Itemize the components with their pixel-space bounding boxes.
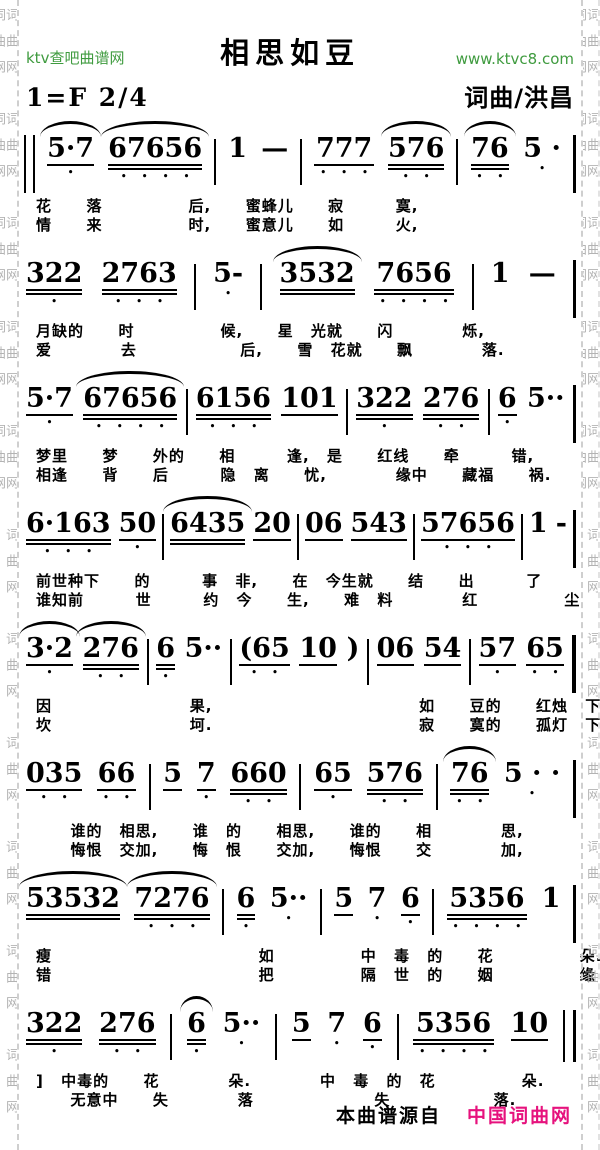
note-group: 6• bbox=[235, 885, 258, 931]
note-group: 7• bbox=[195, 760, 218, 802]
note-digits: 6 bbox=[401, 885, 420, 912]
octave-dots: • bbox=[233, 1040, 251, 1048]
octave-dots: • • • • bbox=[90, 423, 170, 431]
note-digits: 5·· bbox=[527, 385, 565, 412]
beam-line bbox=[26, 914, 120, 916]
note-group: 57656• • • bbox=[419, 510, 517, 552]
note-digits: 10 bbox=[299, 635, 337, 662]
octave-dots: • bbox=[219, 290, 237, 298]
note-group: 5 ·• bbox=[521, 135, 563, 173]
beam-line bbox=[239, 664, 289, 666]
music-system: 322•276• •6•5··•57•6•5356• • • •10] 中毒的 … bbox=[24, 994, 576, 1110]
note-digits: 5- bbox=[213, 260, 243, 287]
beam-line bbox=[108, 164, 202, 166]
note-group: 10 bbox=[509, 1010, 551, 1041]
lyric-line: 悔恨 交加, 悔 恨 交加, 悔恨 交 加, bbox=[24, 841, 576, 860]
note-group: 76• • bbox=[448, 760, 491, 806]
note-digits: 3·2 bbox=[26, 635, 73, 662]
bar-line bbox=[573, 135, 576, 193]
octave-dots: • bbox=[368, 915, 386, 923]
octave-dots: • • bbox=[450, 798, 489, 806]
beam-line bbox=[424, 664, 462, 666]
beam-line bbox=[26, 918, 120, 920]
bar-line bbox=[170, 1014, 172, 1060]
beam-line bbox=[471, 168, 510, 170]
beam-line bbox=[413, 1043, 493, 1045]
footer: 本曲谱源自 中国词曲网 bbox=[336, 1101, 572, 1128]
note-digits: 322 bbox=[26, 1010, 82, 1037]
footer-source-label: 本曲谱源自 bbox=[336, 1101, 441, 1128]
bar-line bbox=[573, 510, 576, 568]
bar-line bbox=[469, 639, 471, 685]
note-group: 576• • bbox=[365, 760, 425, 806]
note-digits: 6435 bbox=[170, 510, 245, 537]
beam-line bbox=[102, 293, 177, 295]
note-group: 1 bbox=[540, 885, 563, 912]
beam-line bbox=[99, 1039, 155, 1041]
bar-line bbox=[572, 635, 576, 693]
note-digits: ) bbox=[347, 635, 360, 662]
note-digits: 5356 bbox=[416, 1010, 491, 1037]
bar-line bbox=[275, 1014, 277, 1060]
bar-line bbox=[573, 885, 576, 943]
note-group: — bbox=[527, 260, 558, 287]
note-digits: 5·7 bbox=[47, 135, 94, 162]
octave-dots: • bbox=[237, 923, 255, 931]
lyric-line: 谁知前 世 约 今 生, 难 料 红 尘 bbox=[24, 591, 576, 610]
lyric-line: 谁的 相思, 谁 的 相思, 谁的 相 思, bbox=[24, 822, 576, 841]
note-digits: 576 bbox=[367, 760, 423, 787]
beam-line bbox=[471, 164, 510, 166]
octave-dots: • • bbox=[375, 798, 414, 806]
note-digits: 5 · · bbox=[504, 760, 560, 787]
note-group: 6• bbox=[154, 635, 177, 681]
note-digits: 67656 bbox=[108, 135, 202, 162]
beam-line bbox=[230, 793, 286, 795]
octave-dots: • bbox=[498, 419, 516, 427]
beam-line bbox=[363, 1039, 382, 1041]
site-url[interactable]: www.ktvc8.com bbox=[456, 50, 574, 68]
note-group: 101 bbox=[279, 385, 339, 416]
note-digits: 7276 bbox=[134, 885, 209, 912]
note-digits: 543 bbox=[351, 510, 407, 537]
bar-line bbox=[397, 1014, 399, 1060]
note-group: 6• bbox=[496, 385, 519, 427]
footer-site-name[interactable]: 中国词曲网 bbox=[467, 1101, 572, 1128]
bar-line bbox=[186, 389, 188, 435]
note-group: 65• bbox=[312, 760, 354, 802]
bar-line bbox=[367, 639, 369, 685]
beam-line bbox=[108, 168, 202, 170]
note-digits: 035 bbox=[26, 760, 82, 787]
beam-line bbox=[156, 668, 175, 670]
notes-row: 5·7•67656• • • •1—777• • •576• •76• •5 ·… bbox=[24, 119, 576, 197]
beam-line bbox=[280, 289, 355, 291]
music-system: 322•2763• • •5-•35327656• • • •1—月缺的 时 候… bbox=[24, 244, 576, 360]
note-group: 6156• • • bbox=[194, 385, 273, 431]
note-digits: 6 bbox=[237, 885, 256, 912]
octave-dots: • bbox=[488, 669, 506, 677]
octave-dots: • • • • bbox=[115, 173, 195, 181]
note-group: 576• • bbox=[386, 135, 446, 181]
note-digits: 276 bbox=[423, 385, 479, 412]
note-group: (65• • bbox=[237, 635, 291, 677]
music-system: 3·2•276• •6•5··(65• •10)065457•65• •因 果,… bbox=[24, 619, 576, 735]
note-digits: 660 bbox=[230, 760, 286, 787]
beam-line bbox=[292, 1039, 311, 1041]
note-group: 20 bbox=[251, 510, 293, 541]
beam-line bbox=[305, 539, 343, 541]
bar-line bbox=[300, 139, 302, 185]
beam-line bbox=[299, 664, 337, 666]
octave-dots: • bbox=[364, 1044, 382, 1052]
octave-dots: • bbox=[523, 790, 541, 798]
octave-dots: • • • bbox=[438, 544, 498, 552]
lyric-line: 梦里 梦 外的 相 逢, 是 红线 牵 错, bbox=[24, 447, 576, 466]
note-group: 276• • bbox=[97, 1010, 157, 1056]
note-group: 65• • bbox=[524, 635, 567, 677]
note-group: 322• bbox=[24, 260, 84, 306]
note-group: 5·7• bbox=[24, 385, 75, 427]
note-digits: 7656 bbox=[377, 260, 452, 287]
note-group: 5-• bbox=[211, 260, 245, 298]
beam-line bbox=[26, 289, 82, 291]
note-digits: 2763 bbox=[102, 260, 177, 287]
notes-row: 5·7•67656• • • •6156• • •101322•276• •6•… bbox=[24, 369, 576, 447]
octave-dots: • • • bbox=[109, 298, 169, 306]
note-digits: 322 bbox=[26, 260, 82, 287]
note-group: 67656• • • • bbox=[106, 135, 204, 181]
note-group: 50• bbox=[117, 510, 159, 552]
beam-line bbox=[26, 414, 73, 416]
octave-dots: • • bbox=[97, 794, 136, 802]
note-group: 2763• • • bbox=[100, 260, 179, 306]
bar-line bbox=[230, 639, 232, 685]
beam-line bbox=[356, 414, 412, 416]
score: 5·7•67656• • • •1—777• • •576• •76• •5 ·… bbox=[0, 113, 600, 1110]
beam-line bbox=[26, 543, 111, 545]
beam-line bbox=[163, 789, 182, 791]
note-digits: 6 bbox=[498, 385, 517, 412]
note-group: 5··• bbox=[268, 885, 310, 923]
note-group: 53532 bbox=[24, 885, 122, 920]
note-group: 5·· bbox=[525, 385, 567, 412]
site-name-left[interactable]: ktv查吧曲谱网 bbox=[26, 47, 124, 68]
note-digits: 1 bbox=[529, 510, 548, 537]
beam-line bbox=[314, 789, 352, 791]
note-group: 1 bbox=[226, 135, 249, 162]
octave-dots: • • bbox=[397, 173, 436, 181]
note-group: 1 bbox=[527, 510, 550, 537]
lyric-line: 瘦 如 中 毒 的 花 朵. bbox=[24, 947, 576, 966]
note-digits: 65 bbox=[314, 760, 352, 787]
bar-line bbox=[299, 764, 301, 810]
octave-dots: • bbox=[188, 1048, 206, 1056]
bar-line bbox=[147, 639, 149, 685]
beam-line bbox=[170, 539, 245, 541]
note-group: 3532 bbox=[278, 260, 357, 295]
note-group: 5·· bbox=[183, 635, 225, 662]
bar-line bbox=[320, 889, 322, 935]
notes-row: 535327276• • •6•5··•57•6•5356• • • •1 bbox=[24, 869, 576, 947]
beam-line bbox=[83, 414, 177, 416]
note-digits: 5 bbox=[292, 1010, 311, 1037]
note-group: 76• • bbox=[469, 135, 512, 181]
note-digits: 67656 bbox=[83, 385, 177, 412]
octave-dots: • bbox=[197, 794, 215, 802]
beam-line bbox=[280, 293, 355, 295]
note-group: 543 bbox=[349, 510, 409, 541]
note-digits: 5·· bbox=[270, 885, 308, 912]
note-group: 5356• • • • bbox=[445, 885, 529, 931]
beam-line bbox=[197, 789, 216, 791]
note-group: 6435 bbox=[168, 510, 247, 545]
note-digits: 6 bbox=[363, 1010, 382, 1037]
octave-dots: • • • bbox=[204, 423, 264, 431]
octave-dots: • • bbox=[432, 423, 471, 431]
key-signature: 1=F 2/4 bbox=[26, 83, 149, 112]
note-digits: (65 bbox=[239, 635, 289, 662]
notes-row: 322•2763• • •5-•35327656• • • •1— bbox=[24, 244, 576, 322]
beam-line bbox=[423, 414, 479, 416]
note-digits: 76 bbox=[471, 135, 509, 162]
beam-line bbox=[388, 168, 444, 170]
note-digits: 5·7 bbox=[26, 385, 73, 412]
beam-line bbox=[356, 418, 412, 420]
note-group: 5356• • • • bbox=[411, 1010, 495, 1056]
octave-dots: • • • • bbox=[447, 923, 527, 931]
octave-dots: • • • bbox=[142, 923, 202, 931]
note-digits: 6·163 bbox=[26, 510, 111, 537]
note-digits: 777 bbox=[316, 135, 372, 162]
beam-line bbox=[26, 1043, 82, 1045]
beam-line bbox=[253, 539, 291, 541]
note-digits: 1 bbox=[228, 135, 247, 162]
beam-line bbox=[97, 789, 136, 791]
note-digits: 5 bbox=[334, 885, 353, 912]
beam-line bbox=[187, 1043, 206, 1045]
lyric-line: ] 中毒的 花 朵. 中 毒 的 花 朵. bbox=[24, 1072, 576, 1091]
note-digits: 06 bbox=[305, 510, 343, 537]
beam-line bbox=[134, 918, 209, 920]
right-border-watermark: 词曲网 词曲网 词曲网 词曲网 词曲网 词曲网 词曲网 词曲网 词曲网 词曲网 … bbox=[581, 0, 600, 1150]
note-digits: 57 bbox=[479, 635, 517, 662]
note-digits: 5 bbox=[163, 760, 182, 787]
beam-line bbox=[447, 914, 527, 916]
note-group: - bbox=[554, 510, 569, 537]
note-group: 66• • bbox=[95, 760, 138, 802]
bar-line bbox=[563, 1010, 576, 1062]
beam-line bbox=[26, 789, 82, 791]
note-group: — bbox=[259, 135, 290, 162]
beam-line bbox=[170, 543, 245, 545]
beam-line bbox=[374, 289, 454, 291]
lyric-line: 前世种下 的 事 非, 在 今生就 结 出 了 bbox=[24, 572, 576, 591]
beam-line bbox=[196, 418, 271, 420]
note-digits: 276 bbox=[83, 635, 139, 662]
octave-dots: • bbox=[157, 673, 175, 681]
note-group: 5 bbox=[332, 885, 355, 916]
note-group: 322• bbox=[354, 385, 414, 431]
beam-line bbox=[26, 664, 73, 666]
note-group: 5·7• bbox=[45, 135, 96, 177]
note-digits: 5·· bbox=[223, 1010, 261, 1037]
lyric-line: 爱 去 后, 雪 花就 飘 落. bbox=[24, 341, 576, 360]
note-group: 54 bbox=[422, 635, 464, 666]
lyric-line: 月缺的 时 候, 星 光就 闪 烁, bbox=[24, 322, 576, 341]
beam-line bbox=[119, 539, 157, 541]
left-border-watermark: 词曲网 词曲网 词曲网 词曲网 词曲网 词曲网 词曲网 词曲网 词曲网 词曲网 … bbox=[0, 0, 19, 1150]
note-group: 3·2• bbox=[24, 635, 75, 677]
sheet-music-page: { "header": { "site_left": "ktv查吧曲谱网", "… bbox=[0, 0, 600, 1150]
beam-line bbox=[498, 414, 517, 416]
note-group: 6• bbox=[399, 885, 422, 927]
notes-row: 6·163• • •50•6435200654357656• • •1- bbox=[24, 494, 576, 572]
beam-line bbox=[230, 789, 286, 791]
lyric-line: 花 落 后, 蜜蜂儿 寂 寞, bbox=[24, 197, 576, 216]
note-digits: 65 bbox=[526, 635, 564, 662]
octave-dots: • • bbox=[91, 673, 130, 681]
note-digits: 57656 bbox=[421, 510, 515, 537]
bar-line bbox=[24, 135, 35, 193]
beam-line bbox=[511, 1039, 549, 1041]
octave-dots: • bbox=[62, 169, 80, 177]
note-digits: 6156 bbox=[196, 385, 271, 412]
music-system: 5·7•67656• • • •6156• • •101322•276• •6•… bbox=[24, 369, 576, 485]
note-group: 276• • bbox=[81, 635, 141, 681]
note-digits: 6 bbox=[187, 1010, 206, 1037]
beam-line bbox=[450, 793, 489, 795]
octave-dots: • • bbox=[35, 794, 74, 802]
octave-dots: • • • bbox=[39, 548, 99, 556]
octave-dots: • bbox=[45, 298, 63, 306]
octave-dots: • bbox=[324, 794, 342, 802]
octave-dots: • bbox=[41, 419, 59, 427]
note-group: 57• bbox=[477, 635, 519, 677]
octave-dots: • • • bbox=[314, 169, 374, 177]
note-digits: 20 bbox=[253, 510, 291, 537]
composer-credit: 词曲/洪昌 bbox=[464, 78, 574, 113]
music-system: 035• •66• •57•660• •65•576• •76• •5 · ·•… bbox=[24, 744, 576, 860]
note-digits: 7 bbox=[197, 760, 216, 787]
beam-line bbox=[377, 664, 415, 666]
note-group: 035• • bbox=[24, 760, 84, 802]
beam-line bbox=[423, 418, 479, 420]
note-digits: — bbox=[261, 135, 288, 162]
note-group: 06 bbox=[375, 635, 417, 666]
octave-dots: • • bbox=[526, 669, 565, 677]
beam-line bbox=[479, 664, 517, 666]
beam-line bbox=[187, 1039, 206, 1041]
note-digits: 66 bbox=[98, 760, 136, 787]
note-group: 6• bbox=[361, 1010, 384, 1052]
beam-line bbox=[314, 164, 374, 166]
beam-line bbox=[237, 914, 256, 916]
note-digits: 06 bbox=[377, 635, 415, 662]
beam-line bbox=[102, 289, 177, 291]
music-system: 5·7•67656• • • •1—777• • •576• •76• •5 ·… bbox=[24, 119, 576, 235]
note-group: ) bbox=[345, 635, 362, 662]
note-digits: 1 bbox=[491, 260, 510, 287]
octave-dots: • bbox=[328, 1040, 346, 1048]
beam-line bbox=[281, 414, 337, 416]
notes-row: 322•276• •6•5··•57•6•5356• • • •10 bbox=[24, 994, 576, 1072]
octave-dots: • bbox=[376, 423, 394, 431]
beam-line bbox=[367, 789, 423, 791]
bar-line bbox=[260, 264, 262, 310]
bar-line bbox=[413, 514, 415, 560]
music-system: 535327276• • •6•5··•57•6•5356• • • •1瘦 如… bbox=[24, 869, 576, 985]
note-digits: 7 bbox=[368, 885, 387, 912]
beam-line bbox=[83, 668, 139, 670]
beam-line bbox=[47, 164, 94, 166]
note-group: 5··• bbox=[221, 1010, 263, 1048]
note-group: 10 bbox=[297, 635, 339, 666]
octave-dots: • bbox=[280, 915, 298, 923]
beam-line bbox=[26, 539, 111, 541]
lyric-line: 相逢 背 后 隐 离 忧, 缘中 藏福 祸. bbox=[24, 466, 576, 485]
beam-line bbox=[237, 918, 256, 920]
bar-line bbox=[573, 260, 576, 318]
note-digits: 101 bbox=[281, 385, 337, 412]
octave-dots: • • bbox=[239, 798, 278, 806]
bar-line bbox=[573, 760, 576, 818]
beam-line bbox=[134, 914, 209, 916]
beam-line bbox=[99, 1043, 155, 1045]
note-group: 6• bbox=[185, 1010, 208, 1056]
beam-line bbox=[26, 1039, 82, 1041]
note-digits: 5356 bbox=[449, 885, 524, 912]
note-digits: — bbox=[529, 260, 556, 287]
note-digits: 53532 bbox=[26, 885, 120, 912]
note-group: 06 bbox=[303, 510, 345, 541]
notes-row: 3·2•276• •6•5··(65• •10)065457•65• • bbox=[24, 619, 576, 697]
note-digits: - bbox=[556, 510, 567, 537]
note-digits: 54 bbox=[424, 635, 462, 662]
bar-line bbox=[149, 764, 151, 810]
beam-line bbox=[351, 539, 407, 541]
header: ktv查吧曲谱网 相思如豆 www.ktvc8.com 1=F 2/4 词曲/洪… bbox=[0, 0, 600, 113]
note-digits: 7 bbox=[327, 1010, 346, 1037]
bar-line bbox=[521, 514, 523, 560]
bar-line bbox=[222, 889, 224, 935]
lyric-line: 坎 坷. 寂 寞的 孤灯 下, bbox=[24, 716, 576, 735]
note-digits: 576 bbox=[388, 135, 444, 162]
octave-dots: • bbox=[533, 165, 551, 173]
beam-line bbox=[26, 293, 82, 295]
lyric-line: 因 果, 如 豆的 红烛 下 bbox=[24, 697, 576, 716]
note-digits: 76 bbox=[451, 760, 489, 787]
beam-line bbox=[388, 164, 444, 166]
note-group: 5 bbox=[161, 760, 184, 791]
note-group: 67656• • • • bbox=[81, 385, 179, 431]
beam-line bbox=[83, 664, 139, 666]
octave-dots: • • bbox=[471, 173, 510, 181]
note-digits: 1 bbox=[542, 885, 561, 912]
octave-dots: • bbox=[401, 919, 419, 927]
bar-line bbox=[346, 389, 348, 435]
note-group: 7• bbox=[325, 1010, 348, 1048]
lyric-line: 情 来 时, 蜜意儿 如 火, bbox=[24, 216, 576, 235]
bar-line bbox=[573, 385, 576, 443]
music-system: 6·163• • •50•6435200654357656• • •1-前世种下… bbox=[24, 494, 576, 610]
beam-line bbox=[156, 664, 175, 666]
bar-line bbox=[432, 889, 434, 935]
bar-line bbox=[162, 514, 164, 560]
bar-line bbox=[214, 139, 216, 185]
bar-line bbox=[456, 139, 458, 185]
note-group: 322• bbox=[24, 1010, 84, 1056]
